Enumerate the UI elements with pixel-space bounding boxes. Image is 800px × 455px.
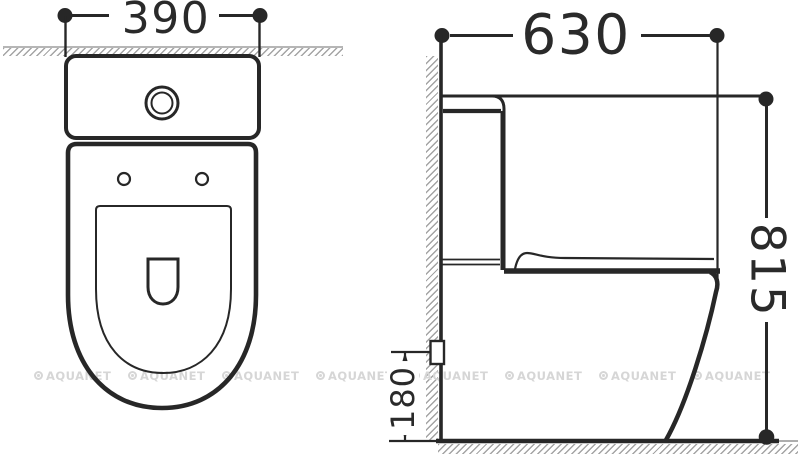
height-dimension-label: 815 (744, 223, 791, 317)
dimension-dot (710, 28, 725, 43)
dimension-dot (759, 92, 774, 107)
toilet-side-view (389, 28, 798, 445)
flush-button-inner (152, 93, 173, 114)
outlet-height-dimension-label: 180 (387, 361, 419, 435)
width-dimension-label: 390 (122, 0, 210, 41)
seat-inner-ring (96, 206, 231, 373)
toilet-top-view (58, 8, 268, 408)
technical-drawing-canvas: AQUANET AQUANET AQUANET AQUANET AQUANET … (0, 0, 800, 455)
outlet-connection (431, 341, 445, 364)
dimension-dot (759, 429, 775, 445)
seat-hinge-icon (196, 173, 208, 185)
depth-dimension-label: 630 (521, 8, 630, 63)
drain-outline (148, 259, 178, 304)
pedestal-front (666, 272, 717, 440)
seat-hinge-icon (118, 173, 130, 185)
seat-profile (515, 253, 714, 269)
tank-outline (66, 56, 259, 138)
